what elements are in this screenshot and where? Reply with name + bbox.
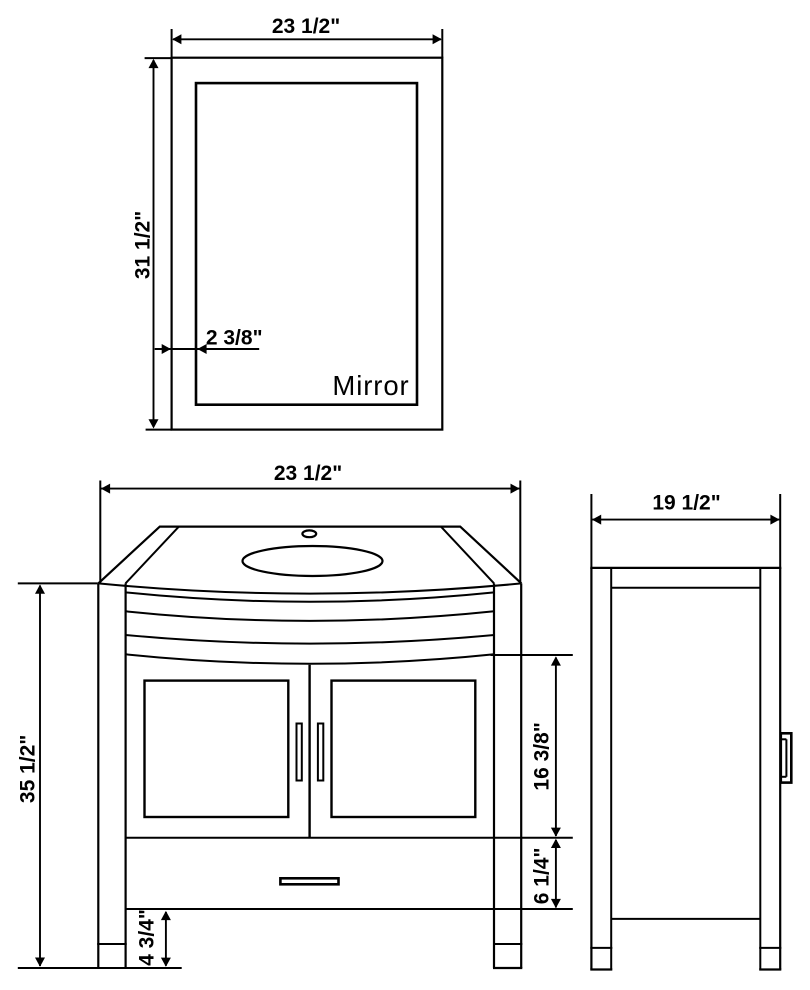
svg-text:2 3/8": 2 3/8" <box>206 327 263 350</box>
svg-text:19 1/2": 19 1/2" <box>652 492 720 515</box>
svg-text:31 1/2": 31 1/2" <box>132 211 155 279</box>
svg-text:35 1/2": 35 1/2" <box>16 735 39 803</box>
svg-text:16 3/8": 16 3/8" <box>531 722 554 790</box>
svg-text:4 3/4": 4 3/4" <box>136 909 159 966</box>
svg-text:Mirror: Mirror <box>332 370 409 401</box>
svg-text:23 1/2": 23 1/2" <box>274 462 342 485</box>
svg-text:23 1/2": 23 1/2" <box>272 15 340 38</box>
svg-text:6 1/4": 6 1/4" <box>531 848 554 905</box>
